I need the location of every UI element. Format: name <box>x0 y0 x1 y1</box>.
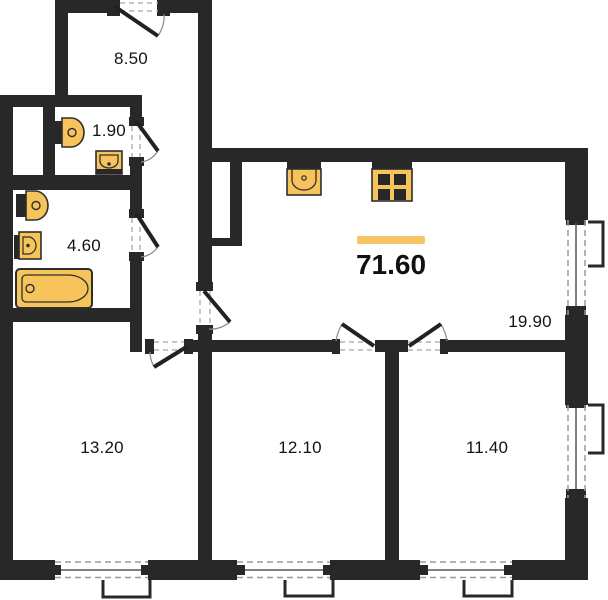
window <box>237 562 330 578</box>
door-bathroom <box>136 213 158 257</box>
plan-graphics <box>0 0 608 600</box>
room-label-hallway: 8.50 <box>101 49 161 69</box>
window <box>420 562 512 578</box>
room-label-bathroom: 4.60 <box>54 236 114 256</box>
room-label-wc: 1.90 <box>79 121 139 141</box>
floor-plan: 8.50 1.90 4.60 19.90 13.20 12.10 11.40 7… <box>0 0 608 600</box>
stove-icon <box>372 162 412 201</box>
sink-icon <box>14 232 41 259</box>
toilet-icon <box>16 191 48 220</box>
door-living <box>204 291 230 329</box>
room-label-room-left: 13.20 <box>67 438 137 458</box>
window <box>568 405 585 498</box>
room-label-room-middle: 12.10 <box>265 438 335 458</box>
room-label-living-kitchen: 19.90 <box>495 312 565 332</box>
window <box>568 220 585 315</box>
kitchen-sink-icon <box>287 162 321 195</box>
room-label-room-right: 11.40 <box>452 438 522 458</box>
bathtub-icon <box>16 269 92 308</box>
window <box>55 562 148 578</box>
total-area-highlight <box>357 236 425 244</box>
door-room-left <box>150 346 188 367</box>
sink-icon <box>96 151 122 174</box>
total-area-label: 71.60 <box>343 249 439 281</box>
